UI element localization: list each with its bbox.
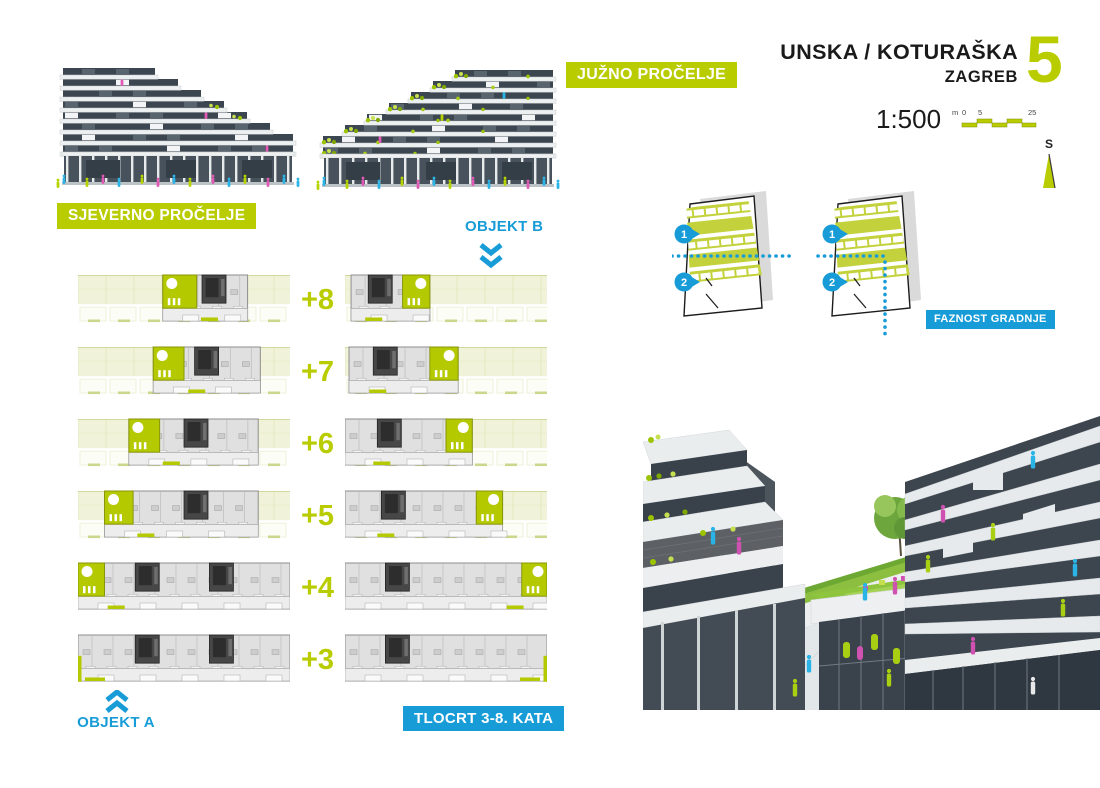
presentation-board: SJEVERNO PROČELJE JUŽNO PROČELJE OBJEKT … <box>0 0 1100 788</box>
floor-plan-strip-objekt-a <box>78 490 290 542</box>
floor-label: +6 <box>290 428 345 461</box>
svg-text:S: S <box>1045 137 1053 151</box>
floor-label: +5 <box>290 500 345 533</box>
floor-plan-strip-objekt-b <box>345 490 547 542</box>
svg-text:0: 0 <box>962 108 966 117</box>
floor-plan-strip-objekt-b <box>345 346 547 398</box>
project-name: UNSKA / KOTURAŠKA <box>700 40 1018 65</box>
floor-label: +8 <box>290 284 345 317</box>
chevron-up-icon <box>103 690 131 714</box>
north-elevation-drawing <box>56 40 304 192</box>
floor-row: +3 <box>78 624 547 696</box>
floor-plan-strip-objekt-b <box>345 562 547 614</box>
north-facade-label: SJEVERNO PROČELJE <box>57 203 256 229</box>
floor-row: +8 <box>78 264 547 336</box>
south-elevation-drawing <box>316 42 564 198</box>
floor-plan-strip-objekt-a <box>78 418 290 470</box>
floor-plan-strip-objekt-a <box>78 634 290 686</box>
floor-plans: +8+7+6+5+4+3 <box>78 264 547 696</box>
courtyard-rendering <box>643 398 1100 710</box>
project-city: ZAGREB <box>700 68 1018 87</box>
objekt-a-label: OBJEKT A <box>76 714 156 731</box>
floor-plan-strip-objekt-b <box>345 634 547 686</box>
floor-plan-strip-objekt-a <box>78 346 290 398</box>
floor-plan-strip-objekt-b <box>345 274 547 326</box>
scale-text: 1:500 <box>876 104 941 135</box>
floor-label: +4 <box>290 572 345 605</box>
phase-1-marker: 1 <box>829 229 835 241</box>
floor-row: +4 <box>78 552 547 624</box>
phasing-caption: FAZNOST GRADNJE <box>926 310 1055 329</box>
floor-plan-strip-objekt-a <box>78 274 290 326</box>
phase-2-marker: 2 <box>681 277 687 289</box>
floor-row: +5 <box>78 480 547 552</box>
phasing-diagrams: 1 2 1 2 <box>672 190 934 342</box>
floor-plan-strip-objekt-a <box>78 562 290 614</box>
north-arrow: S <box>1036 136 1062 192</box>
floor-row: +7 <box>78 336 547 408</box>
floor-label: +3 <box>290 644 345 677</box>
svg-text:5: 5 <box>978 108 982 117</box>
phase-1-marker: 1 <box>681 229 687 241</box>
floor-row: +6 <box>78 408 547 480</box>
floor-plan-strip-objekt-b <box>345 418 547 470</box>
plans-caption: TLOCRT 3-8. KATA <box>403 706 564 731</box>
objekt-b-label: OBJEKT B <box>465 218 543 235</box>
svg-text:m: m <box>952 108 958 117</box>
sheet-number: 5 <box>1026 26 1063 92</box>
svg-text:25: 25 <box>1028 108 1036 117</box>
scale-bar: m 0 5 25 <box>950 106 1040 134</box>
phase-2-marker: 2 <box>829 277 835 289</box>
title-block: UNSKA / KOTURAŠKA ZAGREB <box>700 40 1018 87</box>
floor-label: +7 <box>290 356 345 389</box>
